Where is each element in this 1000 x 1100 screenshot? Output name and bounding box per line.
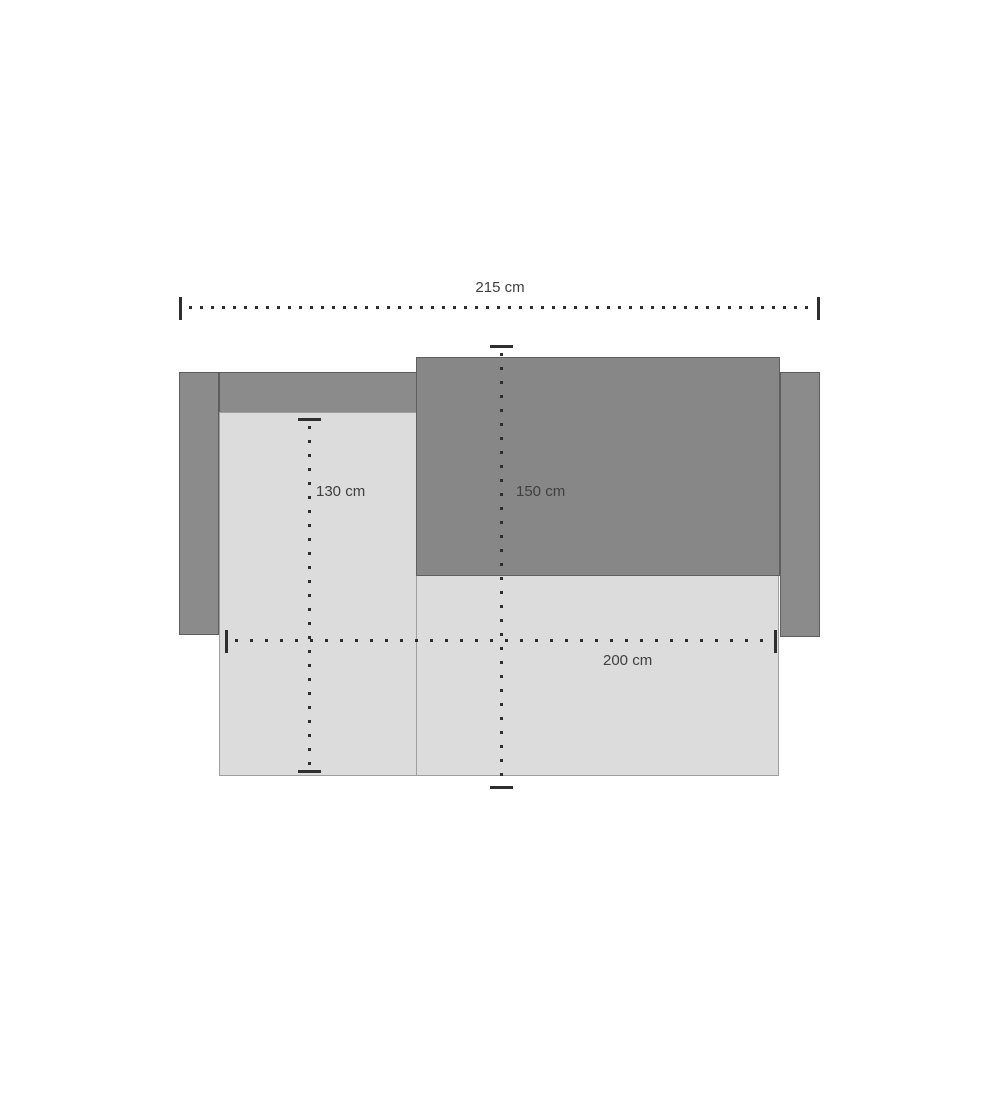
- bed-depth-label: 150 cm: [516, 483, 565, 501]
- dim-end-tick-right: [774, 630, 777, 653]
- dotted-dimension-line-vertical: [500, 353, 503, 781]
- sofa-dimension-diagram: 215 cm 130 cm 150 cm 200 cm: [0, 0, 1000, 1100]
- dotted-dimension-line-vertical: [308, 426, 311, 766]
- dim-end-tick-left: [179, 297, 182, 320]
- dim-end-tick-top: [298, 418, 321, 421]
- left-armrest: [179, 372, 219, 635]
- dim-end-tick-top: [490, 345, 513, 348]
- dotted-dimension-line-horizontal: [235, 639, 771, 642]
- seat-divider-line: [416, 576, 417, 776]
- mattress-section: [416, 357, 780, 576]
- dim-end-tick-left: [225, 630, 228, 653]
- dim-end-tick-bottom: [298, 770, 321, 773]
- right-armrest: [780, 372, 820, 637]
- dim-end-tick-bottom: [490, 786, 513, 789]
- inner-width-label: 200 cm: [603, 652, 652, 670]
- backrest: [219, 372, 417, 413]
- overall-width-label: 215 cm: [475, 279, 524, 297]
- chaise-depth-label: 130 cm: [316, 483, 365, 501]
- dotted-dimension-line-horizontal: [189, 306, 812, 309]
- dim-end-tick-right: [817, 297, 820, 320]
